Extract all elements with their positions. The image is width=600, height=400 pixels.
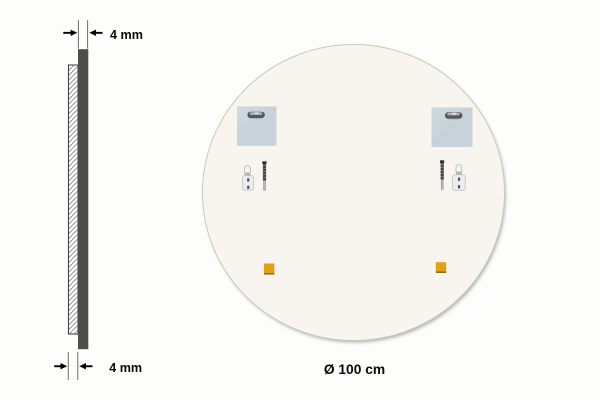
svg-text:Ø 100 cm: Ø 100 cm <box>324 362 385 377</box>
svg-text:4 mm: 4 mm <box>109 361 142 375</box>
svg-text:4 mm: 4 mm <box>110 28 143 42</box>
